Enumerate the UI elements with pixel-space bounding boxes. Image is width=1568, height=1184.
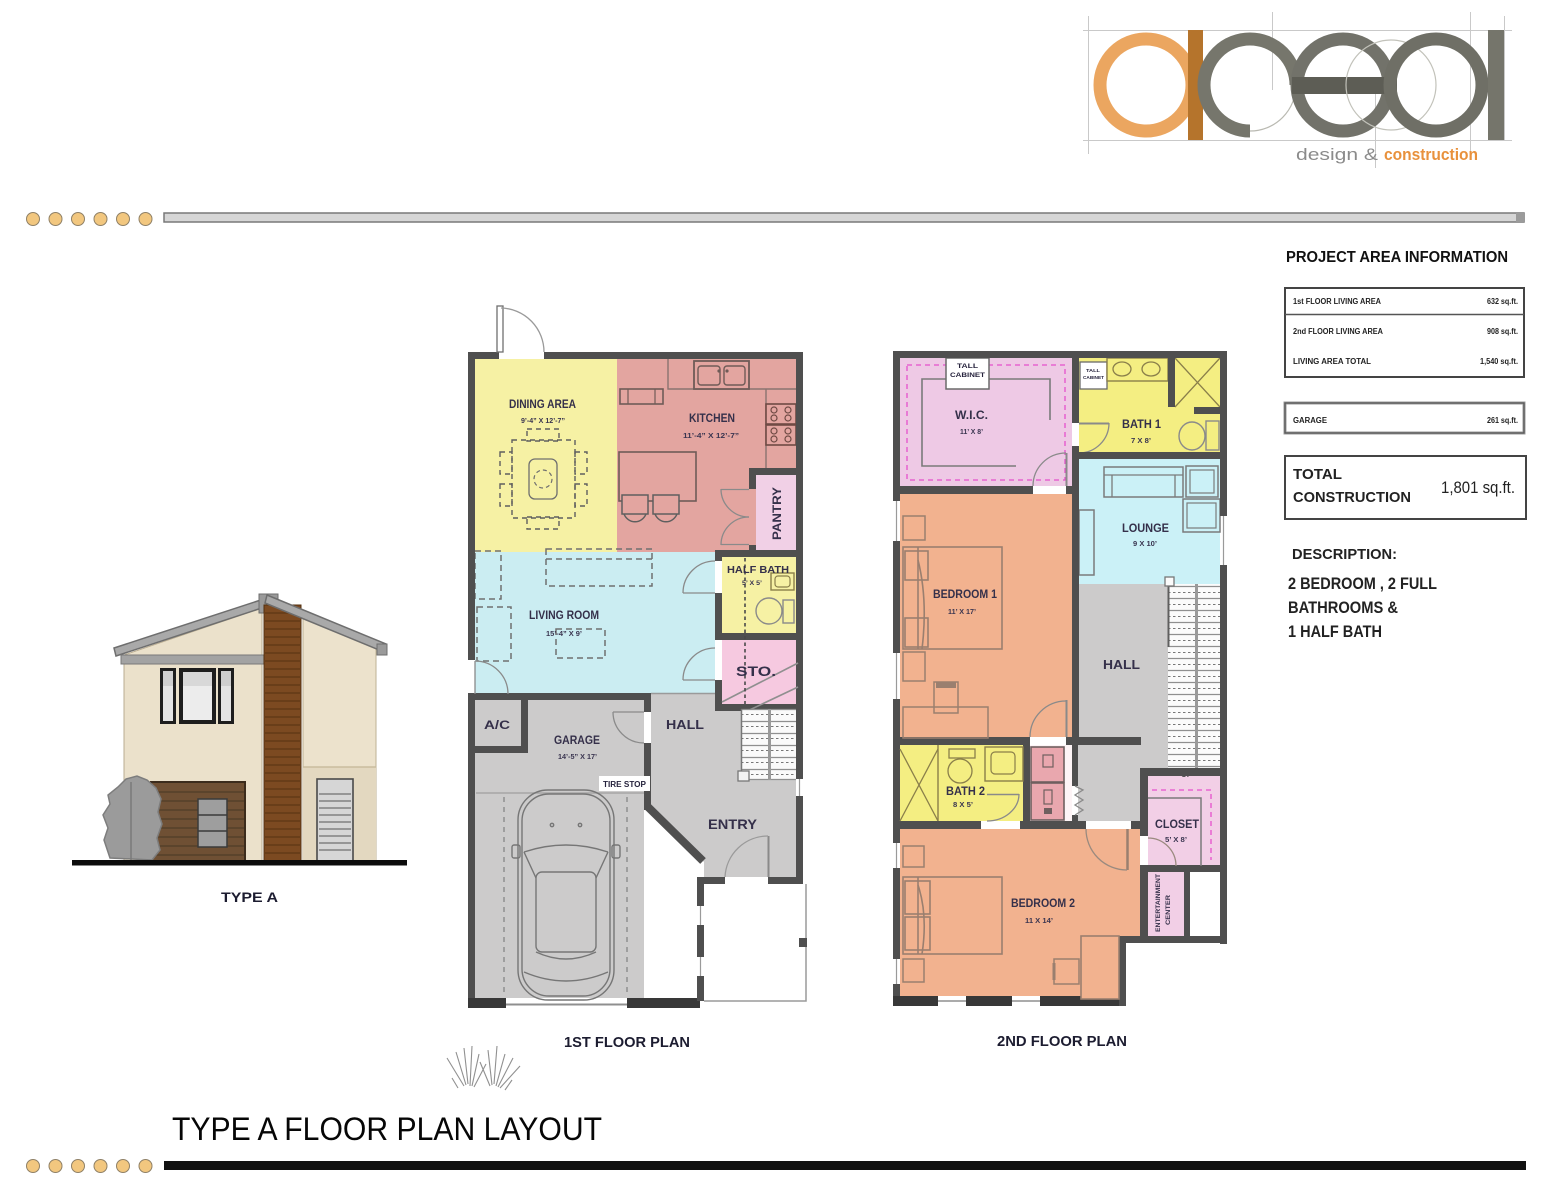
svg-text:7 X 8’: 7 X 8’ [1131, 438, 1151, 445]
svg-text:W.I.C.: W.I.C. [955, 408, 988, 422]
svg-text:1 HALF BATH: 1 HALF BATH [1288, 622, 1382, 641]
svg-text:BATH 2: BATH 2 [946, 784, 985, 798]
svg-text:11’ X 17’: 11’ X 17’ [948, 609, 976, 616]
svg-text:8 X 5’: 8 X 5’ [953, 802, 973, 809]
svg-text:9 X 10’: 9 X 10’ [1133, 541, 1157, 548]
svg-text:908 sq.ft.: 908 sq.ft. [1487, 327, 1518, 336]
svg-text:1,801 sq.ft.: 1,801 sq.ft. [1441, 478, 1515, 497]
svg-text:1st FLOOR LIVING AREA: 1st FLOOR LIVING AREA [1293, 297, 1381, 306]
svg-text:1,540 sq.ft.: 1,540 sq.ft. [1480, 357, 1518, 366]
svg-text:DESCRIPTION:: DESCRIPTION: [1292, 546, 1397, 563]
svg-text:BEDROOM 1: BEDROOM 1 [933, 587, 997, 601]
svg-text:5’ X 5’: 5’ X 5’ [742, 580, 762, 587]
svg-text:design &: design & [1296, 145, 1379, 164]
svg-text:CLOSET: CLOSET [1155, 817, 1200, 831]
svg-text:14’-5” X 17’: 14’-5” X 17’ [558, 754, 597, 761]
svg-text:11’-4” X 12’-7”: 11’-4” X 12’-7” [683, 433, 739, 440]
svg-text:CENTER: CENTER [1166, 894, 1172, 925]
svg-text:TALL: TALL [957, 363, 978, 370]
svg-text:LIVING AREA TOTAL: LIVING AREA TOTAL [1293, 357, 1371, 366]
svg-text:GARAGE: GARAGE [554, 733, 600, 747]
svg-text:HALL: HALL [666, 717, 704, 732]
svg-text:BATH 1: BATH 1 [1122, 417, 1161, 431]
svg-text:HALF BATH: HALF BATH [727, 564, 789, 576]
svg-text:5’ X 8’: 5’ X 8’ [1165, 837, 1187, 844]
svg-text:2 BEDROOM , 2 FULL: 2 BEDROOM , 2 FULL [1288, 574, 1437, 593]
svg-text:CABINET: CABINET [950, 372, 985, 379]
svg-text:BATHROOMS &: BATHROOMS & [1288, 598, 1398, 617]
svg-text:2ND FLOOR PLAN: 2ND FLOOR PLAN [997, 1033, 1127, 1050]
svg-text:TALL: TALL [1086, 368, 1100, 373]
svg-text:1ST FLOOR PLAN: 1ST FLOOR PLAN [564, 1034, 690, 1051]
svg-text:HALL: HALL [1103, 657, 1140, 672]
svg-text:LIVING ROOM: LIVING ROOM [529, 608, 599, 622]
svg-text:PROJECT AREA INFORMATION: PROJECT AREA INFORMATION [1286, 249, 1508, 266]
svg-text:LOUNGE: LOUNGE [1122, 521, 1169, 535]
svg-text:261 sq.ft.: 261 sq.ft. [1487, 416, 1518, 425]
svg-text:PANTRY: PANTRY [770, 487, 784, 540]
svg-text:TYPE A FLOOR PLAN LAYOUT: TYPE A FLOOR PLAN LAYOUT [172, 1111, 602, 1147]
svg-text:11 X 14’: 11 X 14’ [1025, 918, 1053, 925]
svg-text:9’-4” X 12’-7”: 9’-4” X 12’-7” [521, 418, 565, 425]
svg-text:CABINET: CABINET [1083, 375, 1104, 380]
svg-text:DINING AREA: DINING AREA [509, 397, 576, 411]
svg-text:632 sq.ft.: 632 sq.ft. [1487, 297, 1518, 306]
svg-text:ENTRY: ENTRY [708, 816, 758, 832]
svg-text:BEDROOM 2: BEDROOM 2 [1011, 896, 1075, 910]
svg-text:CONSTRUCTION: CONSTRUCTION [1293, 489, 1411, 506]
svg-text:A/C: A/C [484, 718, 510, 732]
svg-text:TIRE STOP: TIRE STOP [603, 780, 647, 789]
svg-text:TOTAL: TOTAL [1293, 466, 1342, 483]
svg-text:STO.: STO. [736, 663, 776, 679]
svg-text:11’ X 8’: 11’ X 8’ [960, 429, 983, 436]
svg-text:GARAGE: GARAGE [1293, 416, 1328, 425]
svg-text:15’-4” X 9’: 15’-4” X 9’ [546, 631, 582, 638]
svg-text:construction: construction [1384, 145, 1478, 164]
svg-text:KITCHEN: KITCHEN [689, 411, 735, 425]
svg-text:TYPE A: TYPE A [221, 889, 278, 905]
svg-text:ENTERTAINMENT: ENTERTAINMENT [1156, 874, 1162, 932]
svg-text:2nd FLOOR LIVING AREA: 2nd FLOOR LIVING AREA [1293, 327, 1383, 336]
